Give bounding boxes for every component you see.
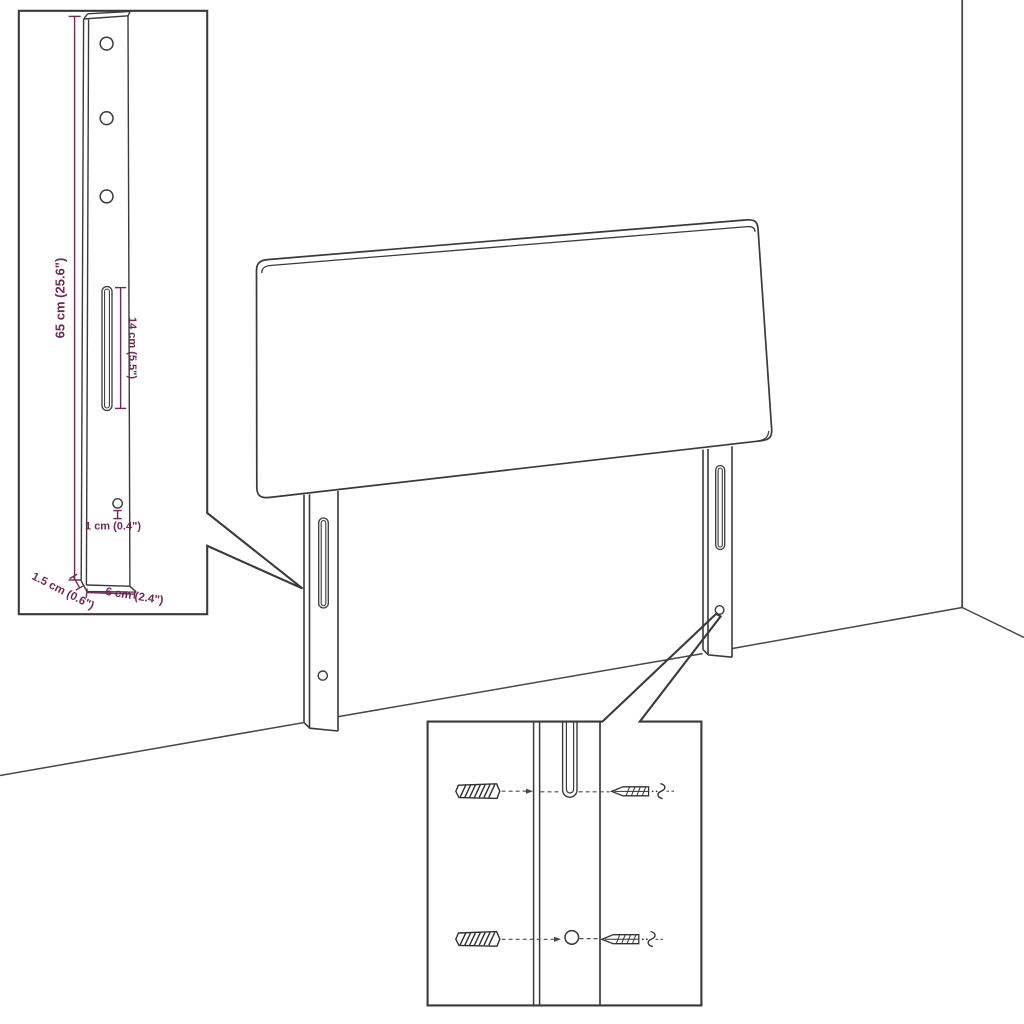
right-leg-slot-inner <box>718 468 722 547</box>
room-backdrop <box>0 0 1024 776</box>
fastener-detail-inset <box>428 614 721 1006</box>
left-leg-screw-hole <box>318 671 327 680</box>
leader-arrowhead <box>526 789 533 794</box>
headboard-panel <box>256 220 771 498</box>
fastener-inset-callout-frame <box>428 614 721 1006</box>
bracket-hole-2 <box>100 112 113 125</box>
wall-plug-icon <box>456 784 500 799</box>
dot <box>652 791 654 793</box>
floor-line-left-1 <box>0 723 304 776</box>
dot <box>642 938 644 940</box>
panel-outline <box>256 220 771 498</box>
headboard-dimension-diagram: 65 cm (25.6") 14 cm (5.5") 1 cm (0.4") 1… <box>0 0 1024 1024</box>
wall-plug-icon <box>456 932 500 947</box>
bracket-drawing <box>81 11 136 592</box>
bracket-detail-inset: 65 cm (25.6") 14 cm (5.5") 1 cm (0.4") 1… <box>19 11 303 614</box>
floor-line-left-3 <box>732 608 962 649</box>
wall-plug-hatching <box>460 785 495 798</box>
strip-slot-inner <box>566 722 573 793</box>
diagram-canvas: 65 cm (25.6") 14 cm (5.5") 1 cm (0.4") 1… <box>0 0 1024 1024</box>
strip-screw-hole <box>565 931 579 945</box>
wall-plug-hatching <box>460 932 495 945</box>
bracket-right-edge <box>128 16 130 586</box>
floor-line-right <box>962 608 1024 638</box>
left-leg-slot-outer <box>319 518 329 608</box>
leader-arrowhead <box>554 937 561 942</box>
bracket-hole-1 <box>100 37 113 50</box>
bracket-slot-outer <box>102 287 112 411</box>
thickness-dimension-line <box>73 576 79 588</box>
dot <box>656 791 658 793</box>
fastener-leg-strip <box>534 722 600 1005</box>
headboard-left-leg <box>304 491 338 731</box>
bracket-top-front-edge <box>84 16 128 19</box>
bracket-left-inner-edge <box>86 20 88 585</box>
screw-head-squiggle <box>648 932 655 947</box>
bracket-hole-3 <box>100 190 113 203</box>
strip-slot-outer <box>563 722 577 797</box>
width-dimension-label: 6 cm (2.4") <box>105 586 165 607</box>
hole-dimension-label: 1 cm (0.4") <box>85 521 141 533</box>
height-dimension-label: 65 cm (25.6") <box>53 258 68 339</box>
bracket-slot-inner <box>105 289 110 408</box>
left-leg-slot-inner <box>321 521 326 606</box>
floor-line-left-2 <box>338 654 702 717</box>
headboard-right-leg <box>703 446 732 657</box>
panel-top-edge-inner-line <box>262 227 755 273</box>
screw-head-squiggle <box>658 784 665 799</box>
alignment-leader-lines <box>502 789 676 942</box>
bracket-left-outer-edge <box>81 19 83 581</box>
slot-dimension-label: 14 cm (5.5") <box>126 317 138 379</box>
right-leg-slot-outer <box>716 466 725 550</box>
screw-icon <box>612 784 665 799</box>
screw-icon <box>602 932 655 947</box>
bracket-small-hole <box>113 499 122 508</box>
dot <box>646 938 648 940</box>
